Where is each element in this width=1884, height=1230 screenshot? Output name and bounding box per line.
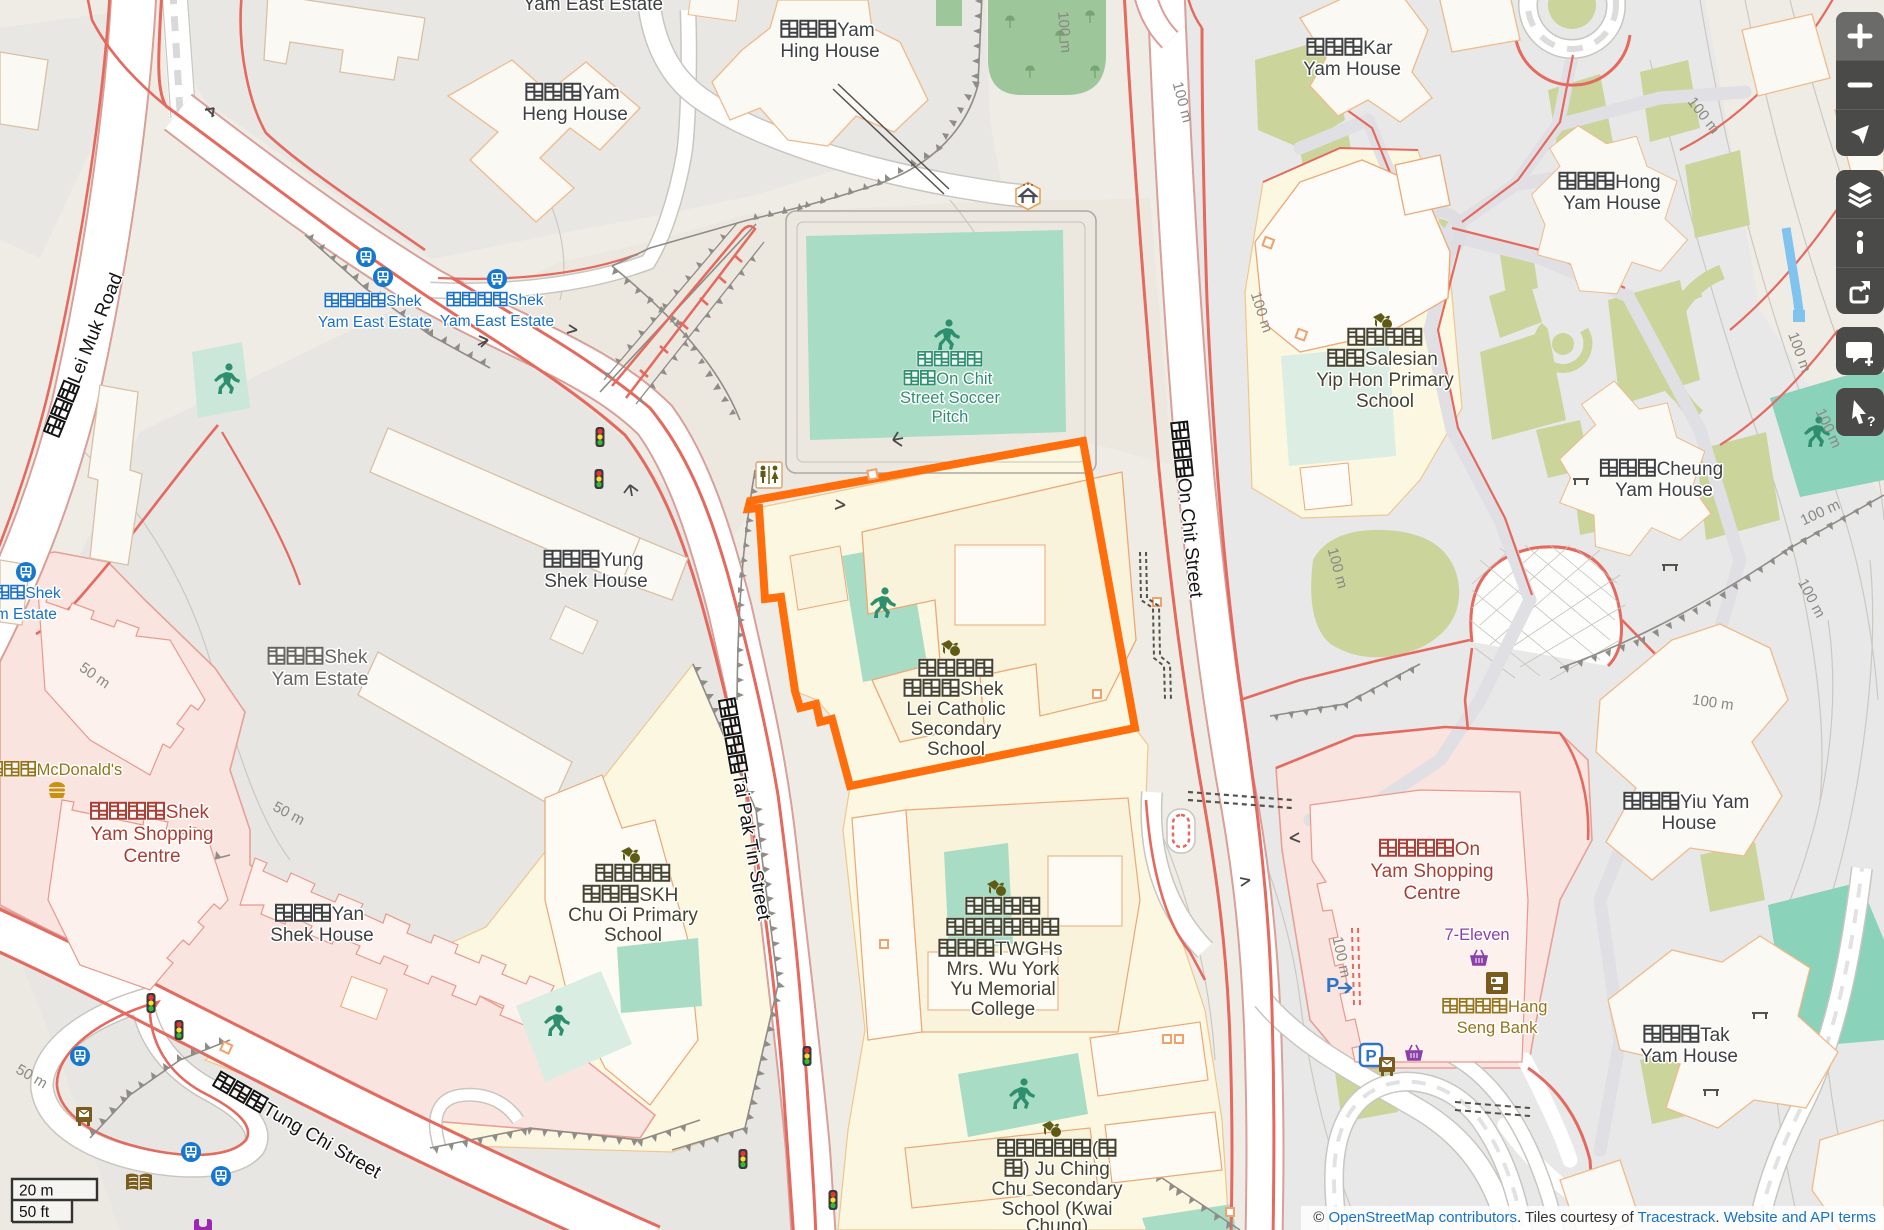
svg-text:) Ju Ching: ) Ju Ching [1023,1159,1110,1180]
svg-text:Seng Bank: Seng Bank [1457,1019,1538,1037]
svg-text:Yam East Estate: Yam East Estate [318,314,432,331]
svg-text:?: ? [1867,413,1876,429]
svg-text:Cheung: Cheung [1657,459,1724,480]
svg-text:am Estate: am Estate [0,606,57,623]
svg-text:Shek: Shek [166,802,210,823]
svg-text:(: ( [1092,1139,1099,1160]
svg-text:Yam House: Yam House [1563,193,1661,214]
svg-text:Shek: Shek [386,293,422,310]
svg-text:Yam: Yam [582,83,620,104]
svg-text:Pitch: Pitch [932,408,969,426]
svg-text:On: On [1455,839,1480,860]
svg-text:SKH: SKH [639,885,678,906]
svg-text:School: School [604,925,662,946]
svg-text:Yam East Estate: Yam East Estate [440,313,554,330]
svg-text:Yam House: Yam House [1303,59,1401,80]
svg-text:Shek House: Shek House [544,571,648,592]
svg-text:Heng House: Heng House [522,104,628,125]
svg-text:Yu Memorial: Yu Memorial [950,979,1056,1000]
svg-text:Yam: Yam [837,20,875,41]
svg-text:Lei Catholic: Lei Catholic [906,699,1005,720]
svg-text:Yiu Yam: Yiu Yam [1680,792,1749,813]
svg-text:Tak: Tak [1700,1025,1730,1046]
svg-text:Shek: Shek [960,679,1004,700]
svg-text:Chu Secondary: Chu Secondary [992,1179,1123,1200]
svg-text:Yam Shopping: Yam Shopping [1370,861,1493,882]
svg-text:Street Soccer: Street Soccer [900,389,1000,407]
svg-text:School: School [1356,391,1414,412]
svg-text:Centre: Centre [123,846,180,867]
svg-text:Mrs. Wu York: Mrs. Wu York [947,959,1060,980]
svg-text:Kar: Kar [1363,38,1393,59]
svg-text:Yam East Estate: Yam East Estate [523,0,663,15]
svg-text:Hong: Hong [1615,172,1660,193]
svg-text:Shek: Shek [25,585,61,602]
svg-text:7-Eleven: 7-Eleven [1444,926,1509,944]
svg-text:Shek: Shek [508,292,544,309]
svg-text:Hing House: Hing House [780,41,879,62]
svg-text:TWGHs: TWGHs [995,939,1063,960]
svg-text:School: School [927,739,985,760]
svg-text:Yam Estate: Yam Estate [272,669,369,690]
svg-text:Yam House: Yam House [1640,1046,1738,1067]
svg-text:20 m: 20 m [19,1183,53,1200]
svg-text:Yan: Yan [332,904,364,925]
svg-text:On Chit: On Chit [936,370,992,388]
svg-text:Yip Hon Primary: Yip Hon Primary [1316,370,1454,391]
svg-text:Chung): Chung) [1026,1216,1088,1230]
svg-text:Yung: Yung [600,550,643,571]
svg-text:College: College [971,999,1035,1020]
svg-text:Hang: Hang [1508,998,1547,1016]
svg-text:Salesian: Salesian [1365,349,1438,370]
svg-text:Chu Oi Primary: Chu Oi Primary [568,905,698,926]
svg-text:McDonald's: McDonald's [37,761,123,779]
svg-text:House: House [1662,813,1717,834]
svg-text:Yam House: Yam House [1615,480,1713,501]
svg-text:Shek: Shek [324,647,368,668]
svg-text:Yam Shopping: Yam Shopping [90,824,213,845]
svg-text:50 ft: 50 ft [19,1204,50,1221]
svg-text:100 m: 100 m [1054,11,1075,54]
svg-text:Centre: Centre [1403,883,1460,904]
svg-text:Shek House: Shek House [270,925,374,946]
svg-text:Secondary: Secondary [911,719,1002,740]
